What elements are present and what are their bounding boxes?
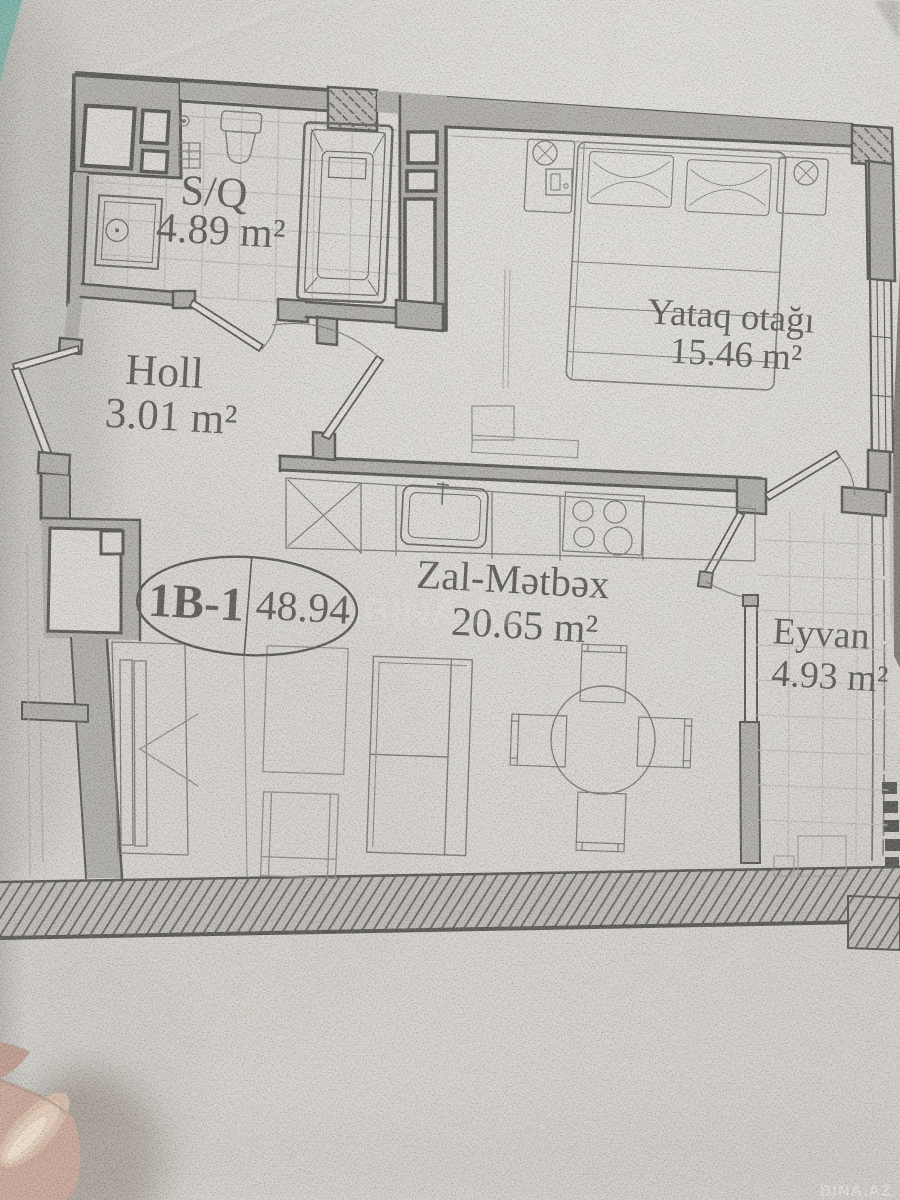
svg-text:BINA.AZ: BINA.AZ xyxy=(820,1183,892,1200)
svg-text:4.93 m²: 4.93 m² xyxy=(770,652,889,700)
svg-text:4.89 m²: 4.89 m² xyxy=(155,205,287,258)
svg-text:BINA.AZ: BINA.AZ xyxy=(362,591,524,635)
svg-text:15.46 m²: 15.46 m² xyxy=(669,331,803,379)
svg-text:48.94: 48.94 xyxy=(255,583,352,634)
svg-text:1B-1: 1B-1 xyxy=(147,574,246,632)
svg-text:3.01 m²: 3.01 m² xyxy=(104,390,239,444)
svg-text:Eyvan: Eyvan xyxy=(772,610,871,657)
svg-text:Holl: Holl xyxy=(124,345,205,398)
